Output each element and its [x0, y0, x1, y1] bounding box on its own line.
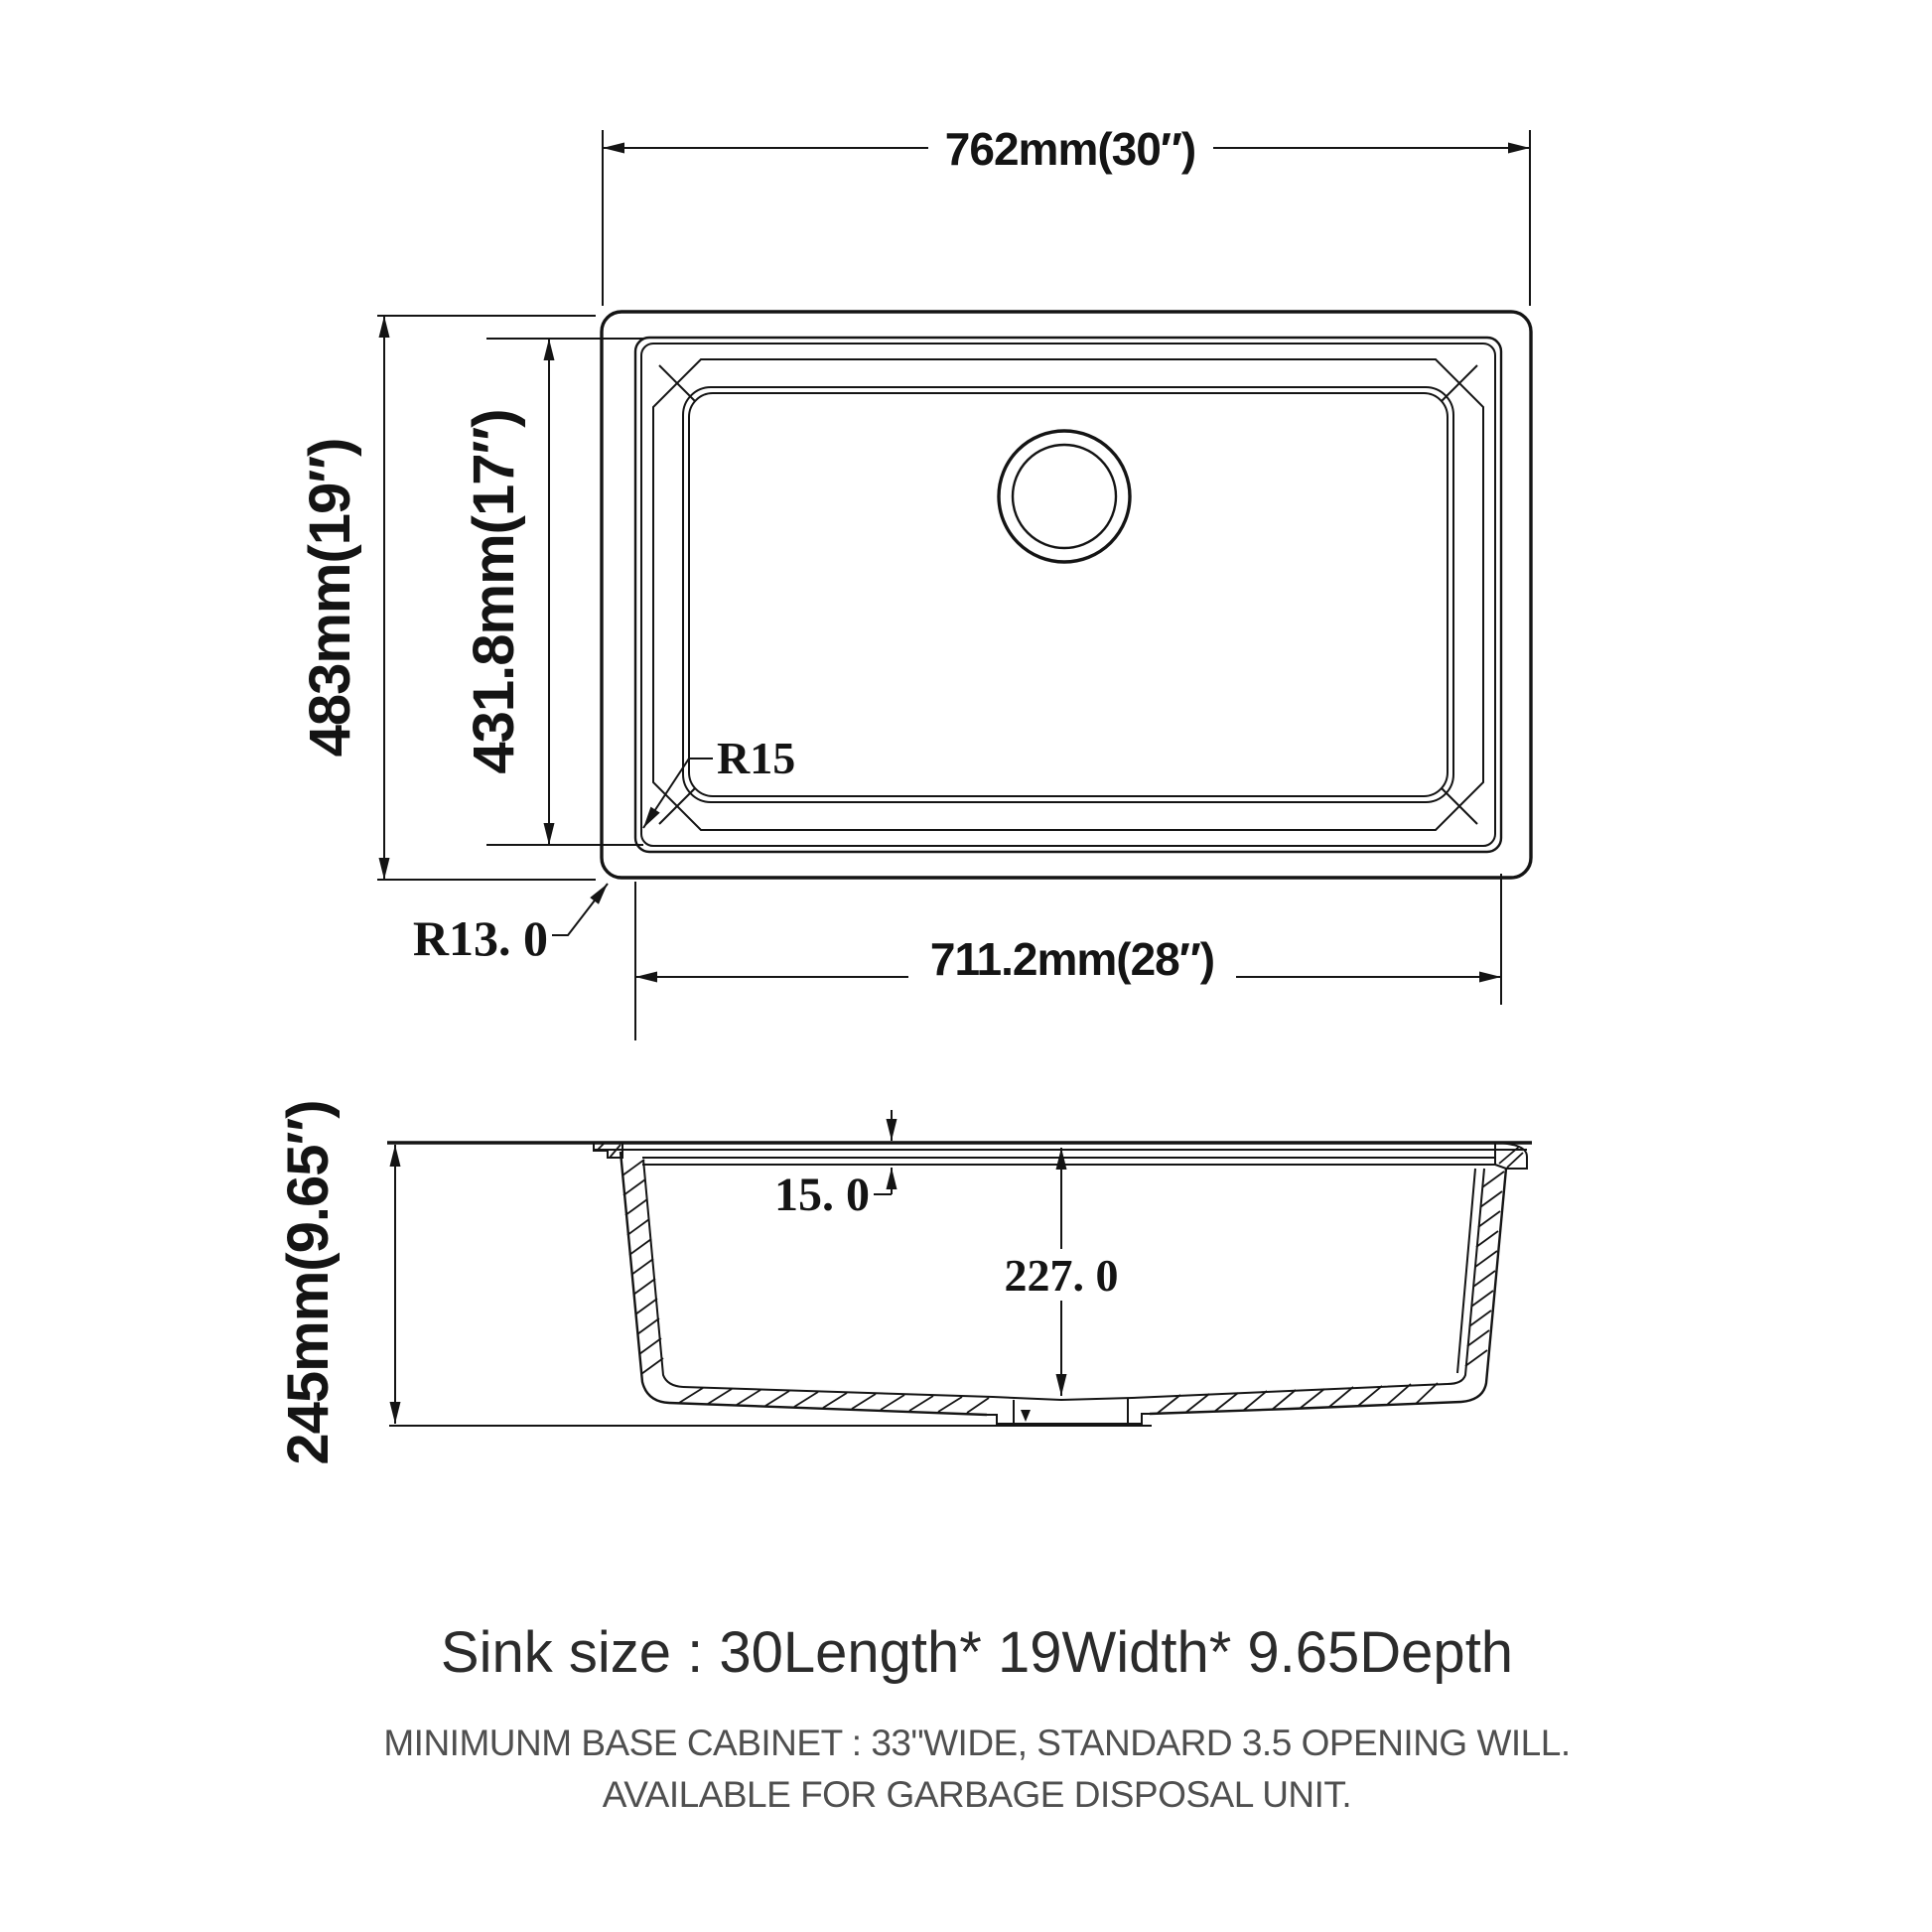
dim-width-label: 762mm(30″): [945, 123, 1195, 175]
disposal-note-text: AVAILABLE FOR GARBAGE DISPOSAL UNIT.: [603, 1774, 1351, 1815]
drain-opening: [999, 431, 1130, 562]
footer-notes: Sink size : 30Length* 19Width* 9.65Depth…: [383, 1620, 1570, 1815]
dim-height-label: 483mm(19″): [298, 439, 362, 758]
drain-mark: [1021, 1410, 1031, 1422]
radius-inner-label: R15: [717, 733, 795, 783]
top-view-dimensions: 762mm(30″) 483mm(19″) 431.8mm(17″) 711.2…: [298, 123, 1530, 1040]
bottom-hatching: [679, 1383, 1438, 1414]
dim-depth-label: 245mm(9.65″): [276, 1100, 341, 1464]
side-view-dimensions: 245mm(9.65″) 15. 0 227. 0: [276, 1100, 1119, 1464]
dim-inner-width-label: 711.2mm(28″): [930, 933, 1214, 985]
right-wall-outer: [1461, 1169, 1506, 1402]
top-view: [602, 312, 1531, 878]
sink-outer-edge: [602, 312, 1531, 878]
radius-outer-label: R13. 0: [413, 910, 548, 966]
drain-boss: [987, 1414, 1150, 1424]
left-wall-inner: [643, 1160, 683, 1387]
sink-bowl-bottom-outer-line: [683, 387, 1453, 802]
drawing-svg: 762mm(30″) 483mm(19″) 431.8mm(17″) 711.2…: [0, 0, 1932, 1932]
sink-bowl-bottom-inner-line: [689, 393, 1448, 796]
sink-dimension-drawing: 762mm(30″) 483mm(19″) 431.8mm(17″) 711.2…: [0, 0, 1932, 1932]
cabinet-note-text: MINIMUNM BASE CABINET : 33"WIDE, STANDAR…: [383, 1723, 1570, 1763]
leader-r13: [552, 884, 608, 935]
right-wall-hatching: [1465, 1172, 1504, 1366]
dim-rim-offset-label: 15. 0: [774, 1169, 870, 1221]
left-wall-hatching: [622, 1160, 663, 1374]
dim-inner-height-label: 431.8mm(17″): [462, 409, 526, 773]
dim-bowl-depth-label: 227. 0: [1005, 1250, 1119, 1301]
size-summary-text: Sink size : 30Length* 19Width* 9.65Depth: [441, 1620, 1513, 1685]
side-view: [387, 1143, 1532, 1426]
bowl-bottom-inner: [683, 1384, 1448, 1400]
